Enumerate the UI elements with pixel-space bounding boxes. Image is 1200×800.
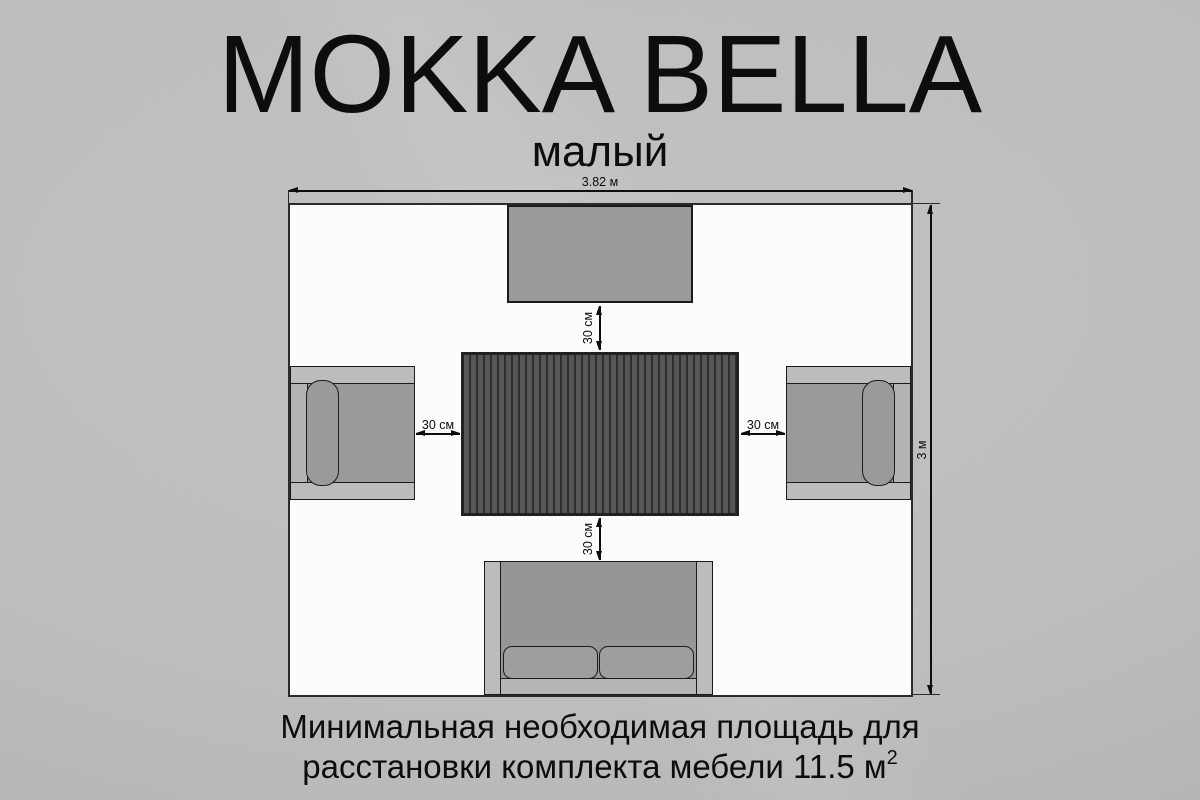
clearance-right-arrow [741, 433, 785, 435]
clearance-right-label: 30 см [733, 417, 793, 433]
sofa-bottom [484, 561, 713, 695]
page-subtitle: малый [0, 130, 1200, 174]
extension-line-top-right [913, 203, 940, 205]
height-dimension-label: 3 м [914, 425, 930, 475]
armchair-left [290, 366, 415, 500]
armchair-armrest-top [290, 366, 415, 384]
furniture-top-rectangle [507, 205, 693, 303]
width-dimension-label: 3.82 м [450, 174, 750, 190]
footer-note-line2: расстановки комплекта мебели 11.5 м2 [0, 747, 1200, 787]
furniture-layout-page: MOKKA BELLA малый 3.82 м 3 м [0, 0, 1200, 800]
clearance-left-arrow [416, 433, 460, 435]
height-dimension-line [930, 205, 932, 694]
clearance-top-arrow [599, 306, 601, 350]
page-title: MOKKA BELLA [0, 20, 1200, 130]
armchair-armrest-top [786, 366, 911, 384]
sofa-cushion-right [599, 646, 694, 679]
sofa-cushion-left [503, 646, 598, 679]
width-dimension-line [289, 190, 912, 192]
clearance-left-label: 30 см [408, 417, 468, 433]
armchair-cushion [862, 380, 895, 486]
armchair-armrest-bottom [290, 482, 415, 500]
clearance-bottom-arrow [599, 518, 601, 560]
armchair-backrest [893, 382, 911, 484]
sofa-armrest-left [484, 561, 501, 695]
sofa-front-rail [499, 678, 698, 695]
clearance-top-label: 30 см [580, 303, 596, 353]
armchair-cushion [306, 380, 339, 486]
armchair-right [786, 366, 911, 500]
footer-note-line1: Минимальная необходимая площадь для [0, 707, 1200, 747]
clearance-bottom-label: 30 см [580, 514, 596, 564]
square-meter-superscript: 2 [887, 747, 898, 769]
sofa-armrest-right [696, 561, 713, 695]
coffee-table [461, 352, 739, 516]
footer-note: Минимальная необходимая площадь для расс… [0, 707, 1200, 787]
armchair-armrest-bottom [786, 482, 911, 500]
